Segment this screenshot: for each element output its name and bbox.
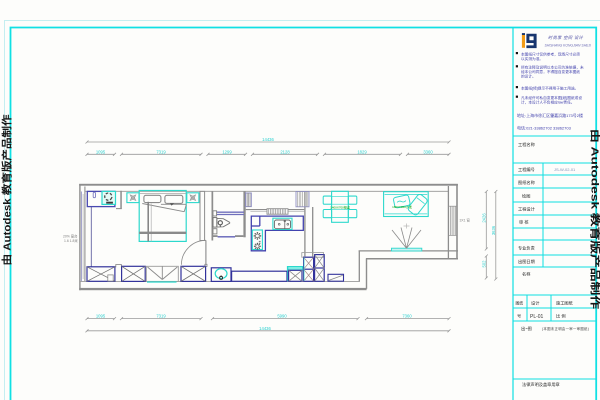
svg-text:工程设计: 工程设计 <box>518 206 535 213</box>
svg-text:1.6 1.8米: 1.6 1.8米 <box>64 238 78 243</box>
svg-text:所有注释及说明以本公司为准依据，未: 所有注释及说明以本公司为准依据，未 <box>521 65 584 70</box>
svg-text:1400X700餐桌: 1400X700餐桌 <box>330 204 350 209</box>
svg-text:7360: 7360 <box>402 314 412 319</box>
svg-text:设计: 设计 <box>531 300 539 307</box>
svg-text:专业负责: 专业负责 <box>518 245 535 252</box>
svg-text:名称: 名称 <box>522 271 530 278</box>
svg-text:电话:021-33862702 33862703: 电话:021-33862702 33862703 <box>517 125 572 131</box>
svg-text:PL-01: PL-01 <box>530 314 544 320</box>
svg-text:审 核: 审 核 <box>519 219 529 226</box>
svg-text:本图纸[修]提示不得用于施工用途。: 本图纸[修]提示不得用于施工用途。 <box>521 85 578 90</box>
svg-text:1800X950沙发: 1800X950沙发 <box>392 204 412 209</box>
svg-text:经本公司同意，不得擅自变更本图纸: 经本公司同意，不得擅自变更本图纸 <box>521 69 580 74</box>
svg-text:凡未经许可私自变更本图[纸]图纸或设: 凡未经许可私自变更本图[纸]图纸或设 <box>521 95 582 100</box>
svg-text:本图纸尺寸仅供参考，现场尺寸必须: 本图纸尺寸仅供参考，现场尺寸必须 <box>521 51 580 56</box>
svg-text:7319: 7319 <box>156 149 166 154</box>
svg-text:1299: 1299 <box>222 149 232 154</box>
svg-text:施工图纸: 施工图纸 <box>556 300 574 307</box>
svg-text:2128: 2128 <box>280 149 290 154</box>
svg-text:SHISHANG KONGJIAN SHEJI: SHISHANG KONGJIAN SHEJI <box>545 44 592 48</box>
svg-text:法律声明及盖章用章: 法律声明及盖章用章 <box>522 381 560 388</box>
svg-text:出图日期: 出图日期 <box>518 258 535 265</box>
svg-text:出~图: 出~图 <box>521 325 532 332</box>
svg-text:地址:上海市徐汇区肇嘉浜路173号2楼: 地址:上海市徐汇区肇嘉浜路173号2楼 <box>517 112 583 118</box>
svg-text:由 Autodesk 教育版产品制作: 由 Autodesk 教育版产品制作 <box>1 115 14 266</box>
svg-text:1095: 1095 <box>96 149 106 154</box>
svg-text:14436: 14436 <box>262 137 274 142</box>
svg-text:1829: 1829 <box>357 149 367 154</box>
svg-text:502: 502 <box>481 260 486 268</box>
svg-text:2426: 2426 <box>481 213 486 223</box>
svg-text:3X1 窗: 3X1 窗 <box>460 218 471 223</box>
svg-text:的设计。: 的设计。 <box>521 73 536 78</box>
svg-text:5990: 5990 <box>277 314 287 319</box>
svg-text:3360: 3360 <box>423 149 433 154</box>
svg-text:以实测为准。: 以实测为准。 <box>521 56 543 61</box>
svg-text:工程编号: 工程编号 <box>518 166 535 173</box>
svg-text:7319: 7319 <box>156 314 166 319</box>
svg-text:图纸: 图纸 <box>516 301 524 306</box>
svg-text:绘图: 绘图 <box>522 193 530 200</box>
svg-text:比 例: 比 例 <box>556 313 566 320</box>
svg-text:由 Autodesk 教育版产品制作: 由 Autodesk 教育版产品制作 <box>589 129 600 309</box>
svg-text:计，本设计人不负相应law责任。: 计，本设计人不负相应law责任。 <box>521 99 574 104</box>
svg-text:3636: 3636 <box>491 225 496 235</box>
svg-text:图纸名称: 图纸名称 <box>518 179 535 186</box>
svg-text:工程名称: 工程名称 <box>518 141 535 148</box>
svg-text:14436: 14436 <box>259 326 271 331</box>
svg-text:1095: 1095 <box>96 314 106 319</box>
svg-text:20% 窗台: 20% 窗台 <box>63 234 78 239</box>
svg-text:时尚家 空间 设计: 时尚家 空间 设计 <box>548 35 584 40</box>
svg-text:JS-W-02-01: JS-W-02-01 <box>554 167 576 172</box>
svg-text:(本图未正明由一审一审图纸): (本图未正明由一审一审图纸) <box>542 326 589 331</box>
